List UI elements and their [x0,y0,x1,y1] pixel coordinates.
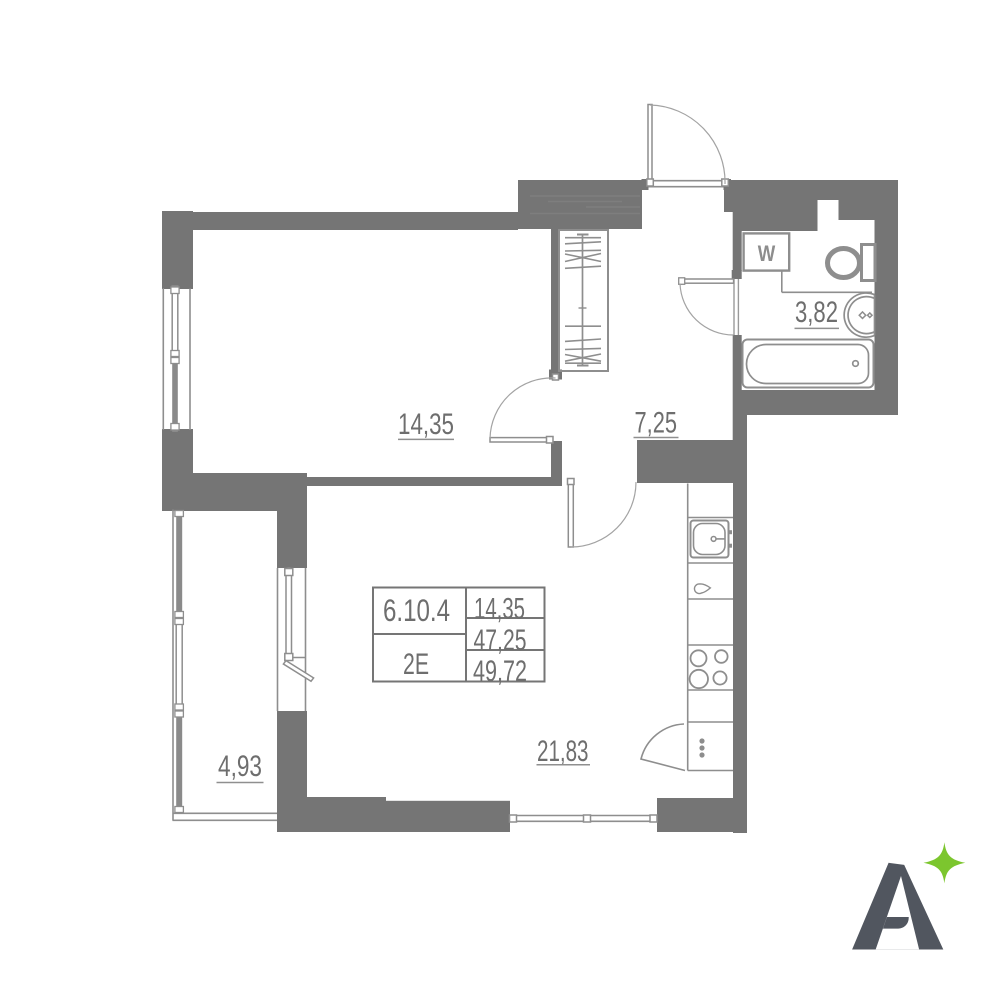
svg-text:6.10.4: 6.10.4 [383,592,450,628]
svg-text:2E: 2E [403,648,429,681]
svg-text:49,72: 49,72 [473,655,527,688]
svg-text:7,25: 7,25 [635,407,678,440]
svg-text:3,82: 3,82 [795,296,838,329]
svg-text:21,83: 21,83 [537,735,589,768]
svg-text:14,35: 14,35 [398,408,454,441]
svg-text:4,93: 4,93 [218,750,262,783]
svg-text:14,35: 14,35 [474,593,525,626]
svg-text:W: W [758,241,776,266]
svg-text:47,25: 47,25 [474,624,527,657]
